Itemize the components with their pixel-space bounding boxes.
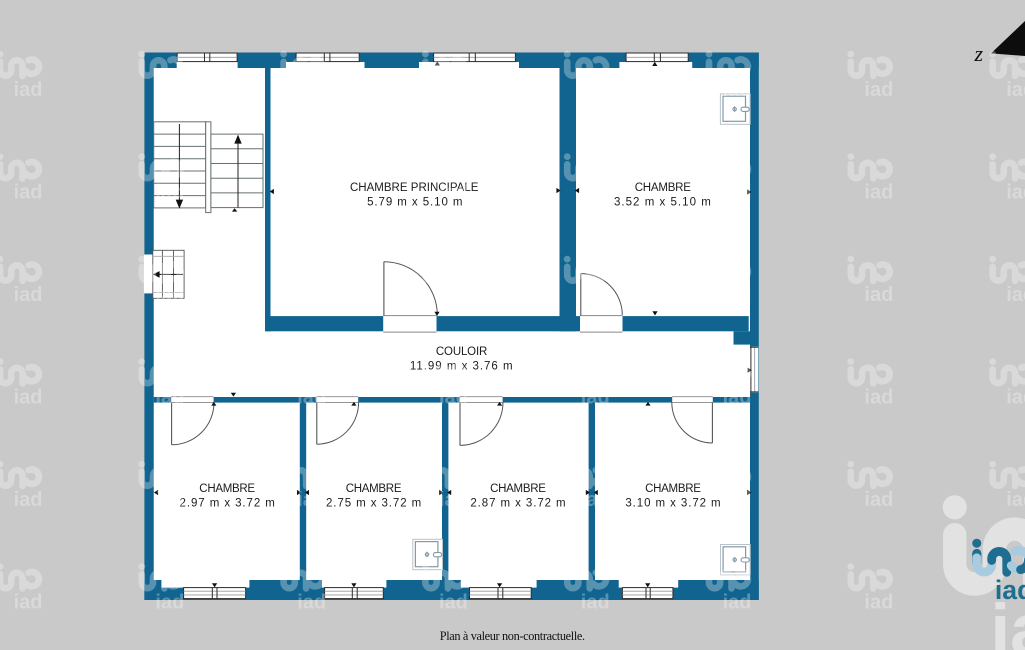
svg-text:3.10 m x 3.72 m: 3.10 m x 3.72 m <box>625 498 720 510</box>
svg-text:CHAMBRE: CHAMBRE <box>199 483 255 495</box>
svg-text:z: z <box>974 41 984 66</box>
svg-text:3.52 m x 5.10 m: 3.52 m x 5.10 m <box>614 196 711 208</box>
svg-text:Plan à valeur non-contractuell: Plan à valeur non-contractuelle. <box>440 629 585 643</box>
svg-text:2.97 m x 3.72 m: 2.97 m x 3.72 m <box>180 498 275 510</box>
svg-text:iad: iad <box>995 575 1025 605</box>
svg-text:2.75 m x 3.72 m: 2.75 m x 3.72 m <box>326 498 421 510</box>
svg-text:COULOIR: COULOIR <box>436 346 487 358</box>
svg-text:2.87 m x 3.72 m: 2.87 m x 3.72 m <box>470 498 565 510</box>
svg-text:CHAMBRE: CHAMBRE <box>490 483 546 495</box>
svg-text:CHAMBRE: CHAMBRE <box>346 483 402 495</box>
svg-text:CHAMBRE: CHAMBRE <box>645 483 701 495</box>
svg-text:CHAMBRE: CHAMBRE <box>635 182 692 194</box>
